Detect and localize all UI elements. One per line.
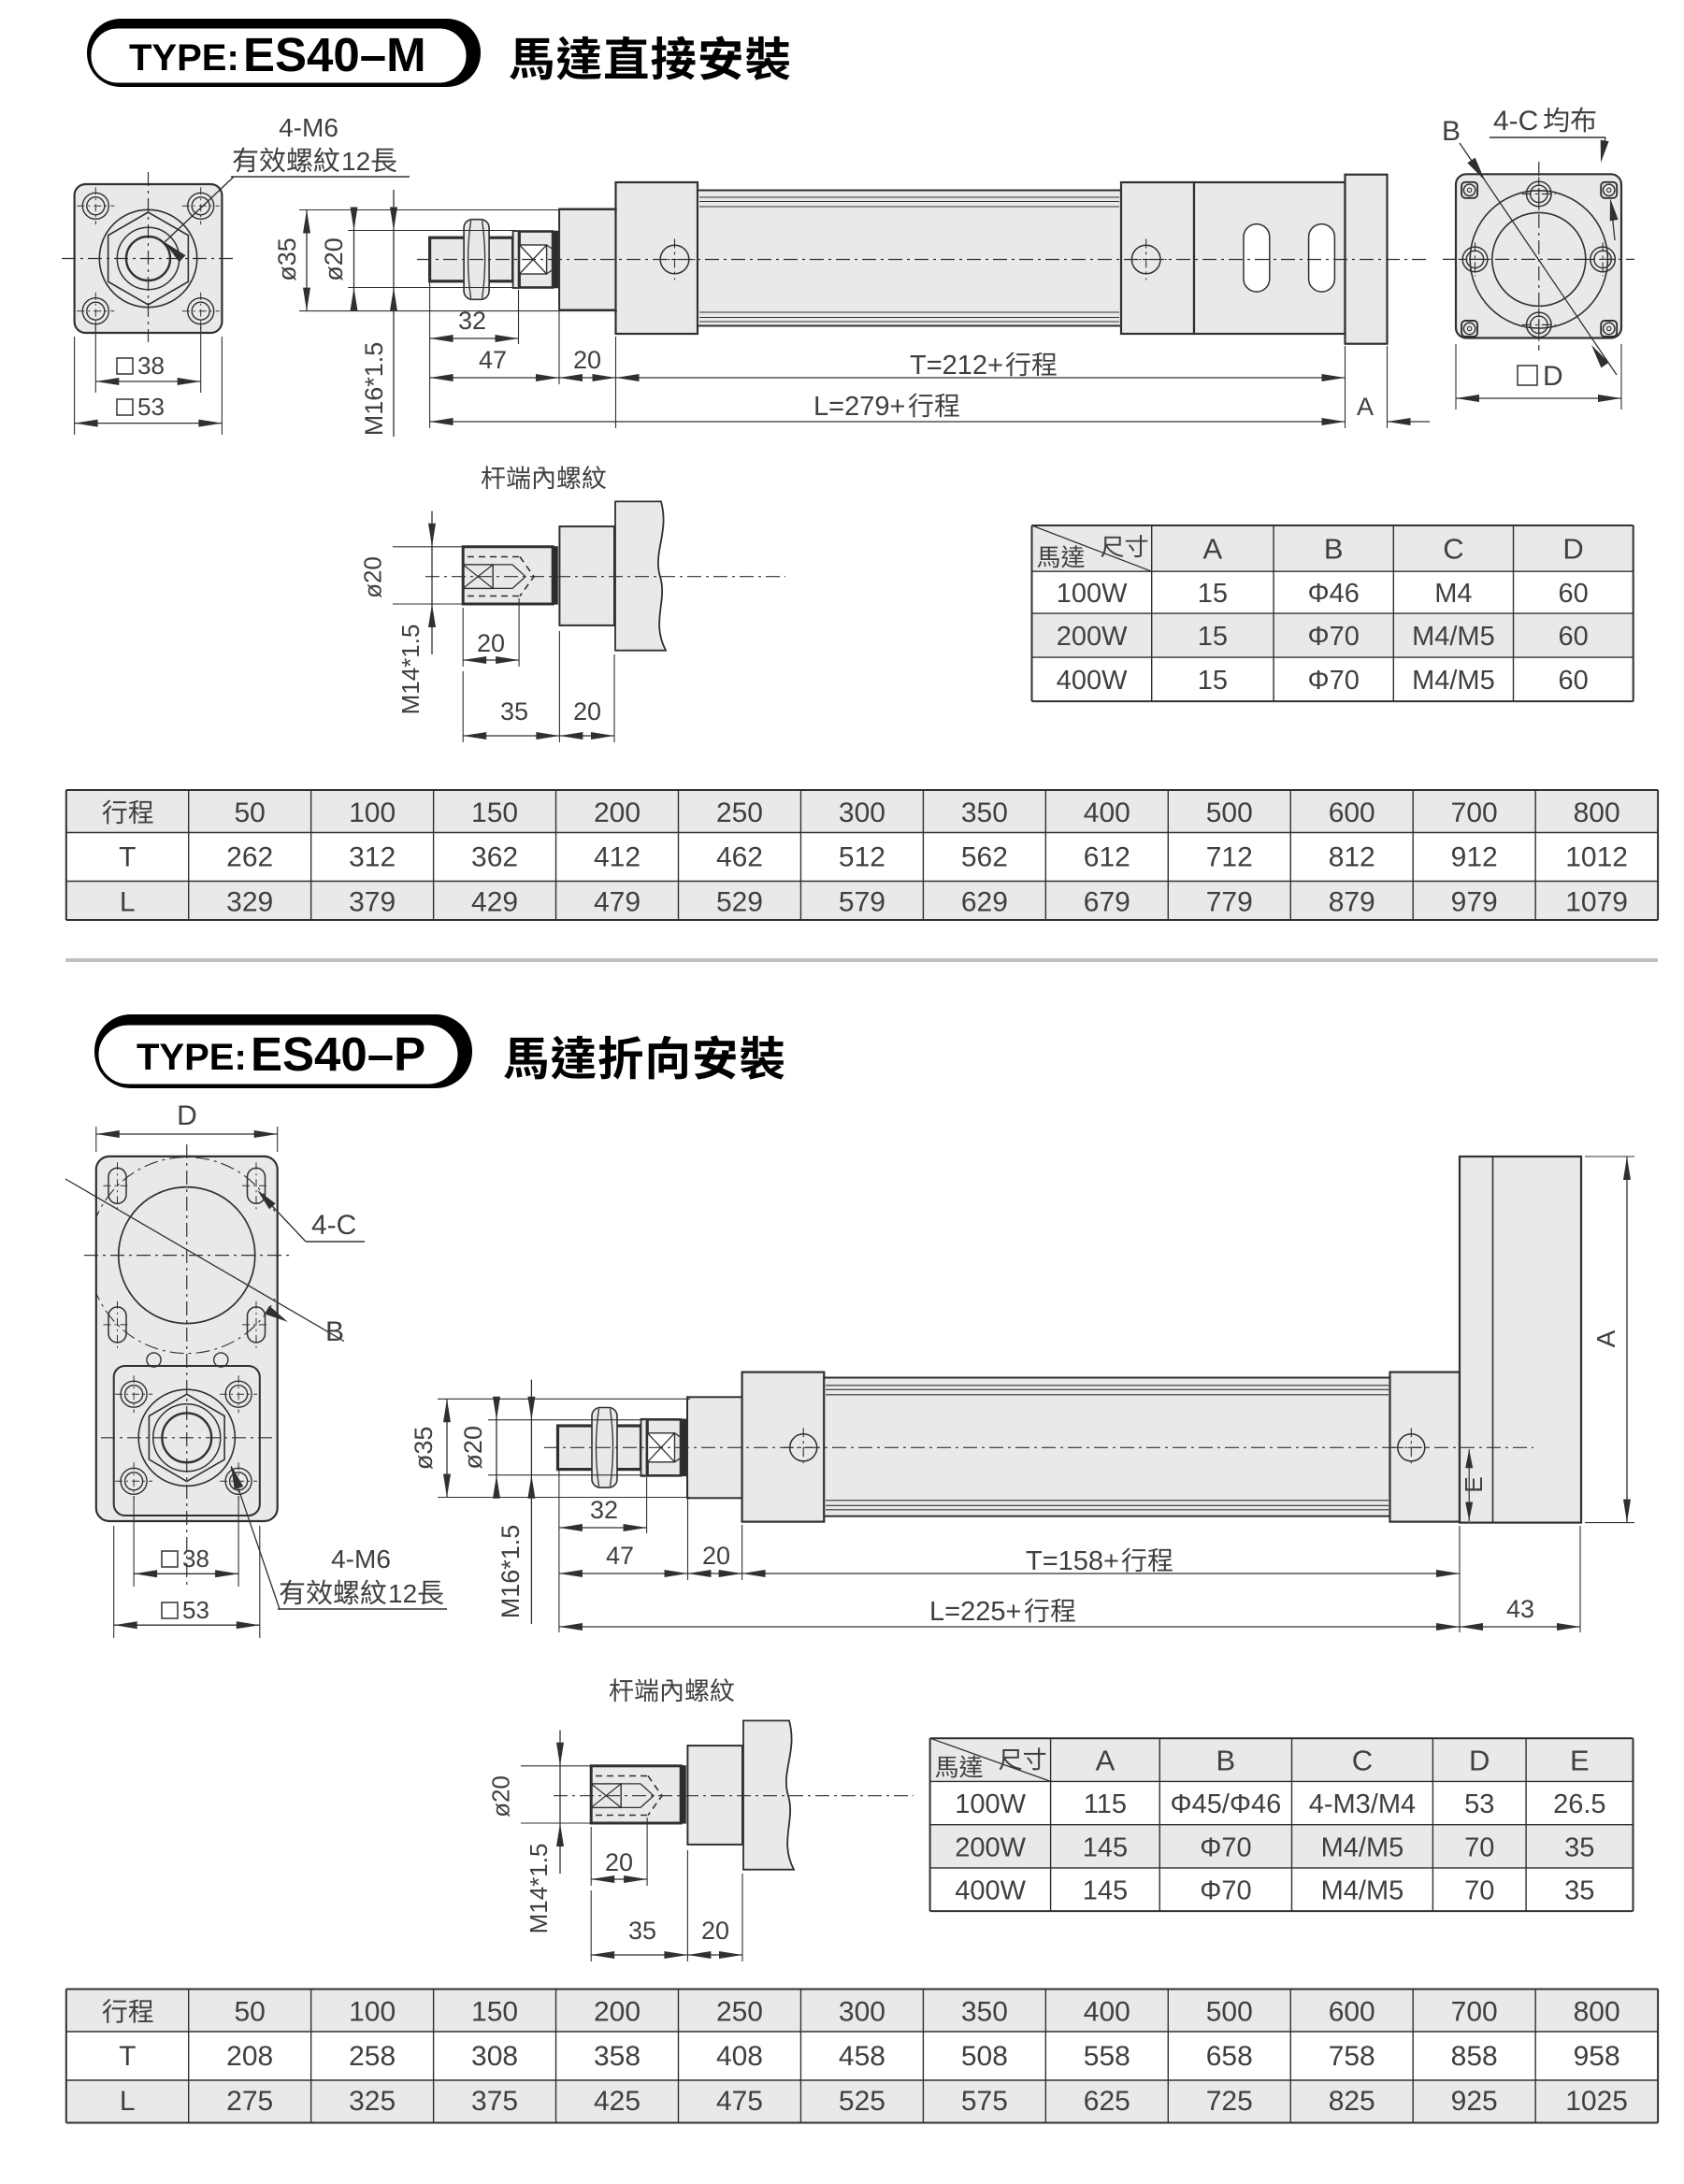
svg-text:TYPE:: TYPE:: [137, 1037, 247, 1078]
svg-text:M4/M5: M4/M5: [1321, 1876, 1404, 1906]
svg-text:4-M6: 4-M6: [279, 113, 338, 142]
svg-text:625: 625: [1084, 2086, 1130, 2117]
svg-text:115: 115: [1084, 1789, 1127, 1819]
svg-text:1012: 1012: [1565, 842, 1628, 873]
svg-text:200: 200: [594, 1997, 640, 2028]
svg-text:200W: 200W: [1057, 622, 1128, 652]
svg-text:479: 479: [594, 887, 640, 918]
svg-text:329: 329: [226, 887, 273, 918]
svg-text:20: 20: [605, 1848, 633, 1876]
svg-text:1079: 1079: [1565, 887, 1628, 918]
svg-text:A: A: [1203, 533, 1223, 566]
svg-text:400W: 400W: [1057, 666, 1128, 696]
svg-text:612: 612: [1084, 842, 1130, 873]
svg-text:525: 525: [839, 2086, 885, 2117]
svg-text:35: 35: [1564, 1832, 1594, 1862]
svg-text:12: 12: [341, 147, 370, 176]
svg-text:462: 462: [716, 842, 763, 873]
svg-text:43: 43: [1506, 1595, 1534, 1623]
svg-text:258: 258: [349, 2041, 396, 2072]
svg-text:32: 32: [590, 1496, 618, 1524]
svg-text:M14*1.5: M14*1.5: [396, 625, 425, 715]
svg-text:600: 600: [1329, 797, 1375, 828]
svg-text:D: D: [1469, 1744, 1490, 1776]
svg-text:L=225+: L=225+: [929, 1597, 1021, 1627]
svg-text:700: 700: [1451, 1997, 1498, 2028]
svg-text:758: 758: [1329, 2041, 1375, 2072]
svg-text:4-C: 4-C: [311, 1210, 356, 1241]
svg-text:C: C: [1443, 533, 1463, 566]
svg-text:562: 562: [961, 842, 1008, 873]
svg-text:800: 800: [1574, 1997, 1620, 2028]
svg-text:12: 12: [388, 1579, 417, 1608]
svg-text:145: 145: [1083, 1832, 1128, 1862]
svg-text:L: L: [120, 887, 136, 918]
svg-text:Φ70: Φ70: [1307, 622, 1359, 652]
svg-text:M4: M4: [1434, 579, 1472, 609]
svg-text:679: 679: [1084, 887, 1130, 918]
svg-text:ø20: ø20: [359, 556, 387, 598]
svg-text:150: 150: [471, 797, 518, 828]
svg-text:312: 312: [349, 842, 396, 873]
svg-text:C: C: [1352, 1744, 1373, 1776]
svg-text:ø20: ø20: [487, 1775, 515, 1818]
svg-text:250: 250: [716, 797, 763, 828]
svg-text:358: 358: [594, 2041, 640, 2072]
svg-text:145: 145: [1083, 1876, 1128, 1906]
svg-text:35: 35: [628, 1917, 656, 1945]
svg-text:M4/M5: M4/M5: [1321, 1832, 1404, 1862]
svg-text:325: 325: [349, 2086, 396, 2117]
svg-text:T=158+: T=158+: [1026, 1546, 1119, 1576]
svg-text:20: 20: [573, 346, 601, 374]
svg-text:D: D: [177, 1100, 197, 1131]
svg-text:20: 20: [701, 1917, 729, 1945]
svg-text:712: 712: [1206, 842, 1253, 873]
svg-text:47: 47: [606, 1542, 634, 1570]
svg-text:700: 700: [1451, 797, 1498, 828]
svg-text:350: 350: [961, 1997, 1008, 2028]
svg-text:Φ46: Φ46: [1307, 579, 1359, 609]
svg-text:D: D: [1562, 533, 1583, 566]
svg-text:600: 600: [1329, 1997, 1375, 2028]
svg-text:20: 20: [702, 1542, 730, 1570]
svg-text:800: 800: [1574, 797, 1620, 828]
svg-text:658: 658: [1206, 2041, 1253, 2072]
svg-text:53: 53: [137, 393, 165, 421]
svg-text:375: 375: [471, 2086, 518, 2117]
svg-text:53: 53: [1464, 1789, 1494, 1819]
svg-text:558: 558: [1084, 2041, 1130, 2072]
svg-text:100W: 100W: [955, 1789, 1026, 1819]
svg-text:200: 200: [594, 797, 640, 828]
svg-text:979: 979: [1451, 887, 1498, 918]
svg-text:M16*1.5: M16*1.5: [497, 1525, 525, 1619]
svg-text:B: B: [1442, 116, 1461, 147]
svg-text:Φ70: Φ70: [1307, 666, 1359, 696]
svg-text:275: 275: [226, 2086, 273, 2117]
svg-text:M16*1.5: M16*1.5: [360, 342, 388, 437]
svg-text:70: 70: [1464, 1876, 1494, 1906]
svg-text:200W: 200W: [955, 1832, 1026, 1862]
svg-text:15: 15: [1198, 579, 1228, 609]
svg-text:579: 579: [839, 887, 885, 918]
svg-text:32: 32: [458, 307, 486, 335]
svg-text:M4/M5: M4/M5: [1412, 622, 1495, 652]
svg-text:A: A: [1591, 1329, 1620, 1347]
svg-text:408: 408: [716, 2041, 763, 2072]
svg-text:300: 300: [839, 797, 885, 828]
svg-text:Φ70: Φ70: [1200, 1876, 1251, 1906]
svg-text:TYPE:: TYPE:: [129, 37, 239, 79]
svg-text:879: 879: [1329, 887, 1375, 918]
svg-text:ø20: ø20: [459, 1426, 487, 1470]
svg-text:458: 458: [839, 2041, 885, 2072]
svg-text:812: 812: [1329, 842, 1375, 873]
svg-text:M14*1.5: M14*1.5: [525, 1844, 553, 1934]
svg-text:475: 475: [716, 2086, 763, 2117]
svg-text:925: 925: [1451, 2086, 1498, 2117]
svg-text:Φ70: Φ70: [1200, 1832, 1251, 1862]
svg-text:B: B: [1216, 1744, 1236, 1776]
svg-text:15: 15: [1198, 666, 1228, 696]
svg-text:Φ45/Φ46: Φ45/Φ46: [1170, 1789, 1281, 1819]
svg-text:T: T: [119, 2041, 136, 2072]
svg-text:858: 858: [1451, 2041, 1498, 2072]
svg-text:60: 60: [1558, 579, 1588, 609]
svg-text:20: 20: [477, 629, 505, 657]
svg-text:500: 500: [1206, 1997, 1253, 2028]
svg-text:308: 308: [471, 2041, 518, 2072]
svg-text:379: 379: [349, 887, 396, 918]
svg-text:60: 60: [1558, 666, 1588, 696]
svg-text:26.5: 26.5: [1553, 1789, 1605, 1819]
svg-text:D: D: [1543, 361, 1563, 392]
svg-text:38: 38: [182, 1545, 209, 1573]
svg-text:100W: 100W: [1057, 579, 1128, 609]
svg-text:T: T: [119, 842, 136, 873]
svg-text:4-M6: 4-M6: [331, 1545, 391, 1573]
svg-text:E: E: [1460, 1476, 1488, 1492]
svg-text:425: 425: [594, 2086, 640, 2117]
svg-text:508: 508: [961, 2041, 1008, 2072]
svg-text:362: 362: [471, 842, 518, 873]
svg-text:208: 208: [226, 2041, 273, 2072]
svg-text:400: 400: [1084, 1997, 1130, 2028]
svg-text:38: 38: [137, 352, 165, 380]
svg-text:300: 300: [839, 1997, 885, 2028]
svg-text:400W: 400W: [955, 1876, 1026, 1906]
svg-text:250: 250: [716, 1997, 763, 2028]
svg-text:ø35: ø35: [410, 1427, 438, 1471]
svg-text:825: 825: [1329, 2086, 1375, 2117]
svg-text:ES40–P: ES40–P: [251, 1027, 425, 1081]
svg-text:50: 50: [234, 797, 265, 828]
svg-text:575: 575: [961, 2086, 1008, 2117]
svg-text:779: 779: [1206, 887, 1253, 918]
svg-text:4-M3/M4: 4-M3/M4: [1309, 1789, 1416, 1819]
svg-text:35: 35: [500, 697, 528, 726]
svg-text:912: 912: [1451, 842, 1498, 873]
svg-text:500: 500: [1206, 797, 1253, 828]
svg-text:262: 262: [226, 842, 273, 873]
svg-text:B: B: [1324, 533, 1344, 566]
svg-text:A: A: [1096, 1744, 1115, 1776]
svg-text:15: 15: [1198, 622, 1228, 652]
svg-text:ø35: ø35: [273, 237, 301, 281]
svg-text:20: 20: [573, 697, 601, 726]
svg-text:47: 47: [479, 346, 507, 374]
svg-text:E: E: [1570, 1744, 1590, 1776]
svg-text:ES40–M: ES40–M: [243, 28, 426, 81]
svg-text:L: L: [120, 2086, 136, 2117]
svg-text:B: B: [325, 1316, 344, 1347]
svg-text:529: 529: [716, 887, 763, 918]
svg-text:958: 958: [1574, 2041, 1620, 2072]
svg-text:T=212+: T=212+: [910, 351, 1003, 381]
svg-text:512: 512: [839, 842, 885, 873]
svg-text:4-C: 4-C: [1493, 106, 1538, 136]
svg-text:50: 50: [234, 1997, 265, 2028]
svg-text:350: 350: [961, 797, 1008, 828]
svg-text:60: 60: [1558, 622, 1588, 652]
svg-text:L=279+: L=279+: [813, 392, 905, 422]
svg-text:100: 100: [349, 797, 396, 828]
svg-text:1025: 1025: [1565, 2086, 1628, 2117]
svg-text:725: 725: [1206, 2086, 1253, 2117]
svg-text:53: 53: [182, 1596, 209, 1624]
svg-text:100: 100: [349, 1997, 396, 2028]
svg-text:150: 150: [471, 1997, 518, 2028]
svg-text:35: 35: [1564, 1876, 1594, 1906]
svg-text:M4/M5: M4/M5: [1412, 666, 1495, 696]
svg-text:429: 429: [471, 887, 518, 918]
svg-text:629: 629: [961, 887, 1008, 918]
svg-text:412: 412: [594, 842, 640, 873]
svg-text:A: A: [1357, 393, 1374, 421]
svg-text:ø20: ø20: [320, 237, 348, 281]
svg-text:400: 400: [1084, 797, 1130, 828]
svg-text:70: 70: [1464, 1832, 1494, 1862]
